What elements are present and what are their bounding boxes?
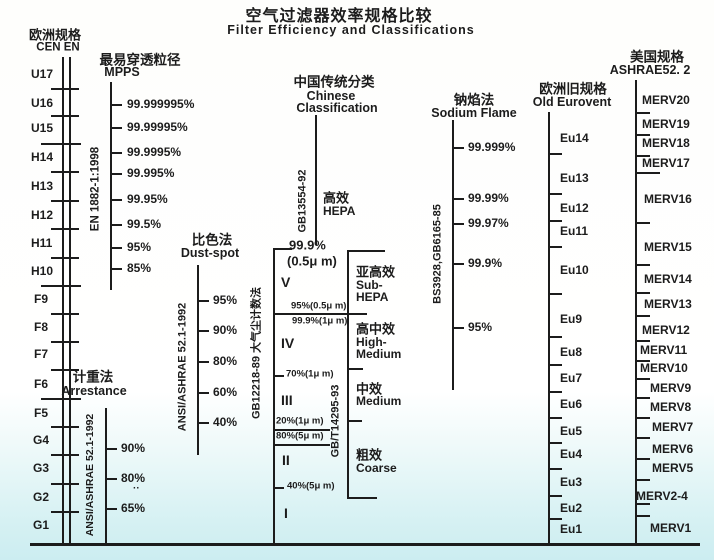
scale-mpps-tick bbox=[110, 224, 122, 226]
scale-dust-spot-label: 40% bbox=[213, 416, 237, 428]
scale-dust-spot-header: Dust-spot bbox=[181, 247, 239, 260]
scale-old-eurovent-label: Eu5 bbox=[560, 425, 582, 437]
scale-chinese-axis-line bbox=[347, 250, 349, 497]
scale-ashrae-merv-label: MERV12 bbox=[642, 324, 690, 336]
scale-chinese-label: 95%(0.5μ m) bbox=[291, 301, 346, 311]
diagram: 空气过滤器效率规格比较 Filter Efficiency and Classi… bbox=[0, 0, 714, 560]
scale-chinese-vertical-label: GB12218-89 大气尘计数法 bbox=[252, 287, 263, 419]
scale-cen-en-label: F5 bbox=[34, 407, 48, 419]
scale-chinese-axis-line bbox=[273, 248, 275, 543]
scale-chinese-label: 高中效 bbox=[356, 323, 395, 336]
scale-ashrae-merv-tick bbox=[635, 458, 650, 460]
scale-ashrae-merv-label: MERV10 bbox=[640, 362, 688, 374]
scale-chinese-label: 高效 bbox=[323, 192, 349, 205]
scale-old-eurovent-label: Eu3 bbox=[560, 476, 582, 488]
page: { "title": { "zh": "空气过滤器效率规格比较", "en": … bbox=[0, 0, 714, 560]
scale-mpps-header: 最易穿透粒径 bbox=[100, 53, 181, 67]
scale-chinese-label: 粗效 bbox=[356, 449, 382, 462]
scale-cen-en-label: U16 bbox=[31, 97, 53, 109]
scale-arrestance-tick bbox=[105, 448, 117, 450]
scale-arrestance-header: 计重法 bbox=[73, 370, 114, 384]
scale-ashrae-merv-label: MERV18 bbox=[642, 137, 690, 149]
scale-ashrae-merv-tick bbox=[635, 155, 650, 157]
scale-cen-en-axis-line bbox=[69, 57, 71, 543]
scale-mpps-tick bbox=[110, 152, 122, 154]
scale-chinese-header: Chinese bbox=[307, 90, 356, 103]
scale-cen-en-tick bbox=[51, 88, 79, 90]
scale-cen-en-label: F8 bbox=[34, 321, 48, 333]
scale-ashrae-merv-tick bbox=[635, 315, 650, 317]
scale-old-eurovent-label: Eu13 bbox=[560, 172, 589, 184]
scale-mpps-tick bbox=[110, 247, 122, 249]
scale-mpps: 最易穿透粒径MPPS99.999995%99.99995%99.9995%99.… bbox=[0, 0, 714, 560]
scale-mpps-label: 99.5% bbox=[127, 218, 161, 230]
scale-old-eurovent-label: Eu10 bbox=[560, 264, 589, 276]
scale-chinese-label: V bbox=[281, 275, 290, 289]
scale-old-eurovent-tick bbox=[548, 364, 562, 366]
scale-old-eurovent-label: Eu4 bbox=[560, 448, 582, 460]
scale-old-eurovent-tick bbox=[548, 518, 562, 520]
scale-cen-en-tick bbox=[51, 313, 79, 315]
scale-ashrae-merv-tick bbox=[635, 222, 650, 224]
scale-ashrae-merv-header: 美国规格 bbox=[630, 50, 684, 64]
scale-chinese-tick bbox=[273, 487, 284, 489]
scale-old-eurovent-tick bbox=[548, 153, 562, 155]
scale-cen-en-tick bbox=[51, 483, 79, 485]
scale-sodium-flame: 钠焰法Sodium Flame99.999%99.99%99.97%99.9%9… bbox=[0, 0, 714, 560]
scale-cen-en-tick bbox=[51, 115, 79, 117]
scale-chinese-label: Medium bbox=[356, 395, 401, 407]
scale-cen-en-tick bbox=[51, 511, 79, 513]
scale-ashrae-merv-label: MERV9 bbox=[650, 382, 691, 394]
scale-cen-en-header: CEN EN bbox=[36, 42, 79, 54]
scale-sodium-flame-tick bbox=[452, 147, 464, 149]
scale-cen-en-label: F7 bbox=[34, 348, 48, 360]
scale-mpps-tick bbox=[110, 173, 122, 175]
scale-chinese-tick bbox=[347, 368, 363, 370]
scale-mpps-label: 99.95% bbox=[127, 193, 168, 205]
scale-arrestance-label: 80% bbox=[121, 472, 145, 484]
scale-cen-en-tick bbox=[51, 200, 79, 202]
scale-arrestance-label: 65% bbox=[121, 502, 145, 514]
scale-chinese-label: 99.9%(1μ m) bbox=[292, 316, 347, 326]
scale-ashrae-merv-tick bbox=[635, 360, 650, 362]
scale-chinese-label: 40%(5μ m) bbox=[287, 481, 335, 491]
scale-dust-spot-label: 90% bbox=[213, 324, 237, 336]
scale-cen-en-label: G2 bbox=[33, 491, 49, 503]
scale-cen-en-label: H10 bbox=[31, 265, 53, 277]
scale-chinese-axis-line bbox=[315, 115, 317, 245]
scale-sodium-flame-label: 99.999% bbox=[468, 141, 515, 153]
scale-arrestance: 计重法Arrestance90%80%··65%ANSI/ASHRAE 52.1… bbox=[0, 0, 714, 560]
scale-sodium-flame-vertical-label: BS3928,GB6165-85 bbox=[433, 204, 444, 304]
scale-arrestance-tick bbox=[105, 508, 117, 510]
scale-ashrae-merv-tick bbox=[635, 479, 650, 481]
scale-chinese-label: Medium bbox=[356, 348, 401, 360]
scale-chinese-label: III bbox=[281, 393, 293, 407]
scale-ashrae-merv-label: MERV15 bbox=[644, 241, 692, 253]
scale-ashrae-merv-tick bbox=[635, 264, 650, 266]
scale-sodium-flame-label: 99.97% bbox=[468, 217, 509, 229]
scale-old-eurovent-label: Eu7 bbox=[560, 372, 582, 384]
scale-ashrae-merv-label: MERV8 bbox=[650, 401, 691, 413]
scale-mpps-header: MPPS bbox=[104, 66, 139, 79]
scale-dust-spot-label: 95% bbox=[213, 294, 237, 306]
scale-arrestance-label: ·· bbox=[133, 484, 140, 494]
scale-old-eurovent-tick bbox=[548, 246, 562, 248]
scale-sodium-flame-header: Sodium Flame bbox=[431, 107, 516, 120]
scale-cen-en-tick bbox=[51, 341, 79, 343]
scale-old-eurovent-tick bbox=[548, 468, 562, 470]
scale-arrestance-vertical-label: ANSI/ASHRAE 52.1-1992 bbox=[85, 414, 96, 537]
scale-ashrae-merv-tick bbox=[635, 397, 650, 399]
scale-old-eurovent-tick bbox=[548, 336, 562, 338]
scale-dust-spot-vertical-label: ANSI/ASHRAE 52.1-1992 bbox=[178, 303, 189, 431]
scale-cen-en-tick bbox=[41, 143, 81, 145]
scale-cen-en-tick bbox=[41, 398, 81, 400]
scale-mpps-label: 99.99995% bbox=[127, 121, 188, 133]
baseline bbox=[30, 543, 700, 546]
scale-old-eurovent-tick bbox=[548, 391, 562, 393]
scale-cen-en-tick bbox=[51, 369, 79, 371]
scale-chinese-label: Sub- bbox=[356, 279, 383, 291]
scale-ashrae-merv-tick bbox=[635, 378, 650, 380]
scale-sodium-flame-tick bbox=[452, 263, 464, 265]
scale-dust-spot-header: 比色法 bbox=[192, 233, 233, 247]
scale-chinese-header: Classification bbox=[296, 102, 377, 115]
scale-ashrae-merv-tick bbox=[635, 417, 650, 419]
scale-ashrae-merv-header: ASHRAE52. 2 bbox=[610, 64, 691, 77]
scale-cen-en-tick bbox=[51, 228, 79, 230]
scale-sodium-flame-axis-line bbox=[452, 120, 454, 390]
scale-cen-en: 欧洲规格CEN ENU17U16U15H14H13H12H11H10F9F8F7… bbox=[0, 0, 714, 560]
scale-chinese-label: 99.9% bbox=[289, 239, 326, 252]
scale-chinese-label: 20%(1μ m) bbox=[276, 416, 324, 426]
scale-cen-en-label: F6 bbox=[34, 378, 48, 390]
scale-old-eurovent-axis-line bbox=[548, 112, 550, 543]
scale-ashrae-merv-tick bbox=[635, 292, 650, 294]
scale-ashrae-merv-tick bbox=[635, 172, 660, 174]
scale-mpps-label: 95% bbox=[127, 241, 151, 253]
scale-chinese-label: II bbox=[282, 453, 290, 467]
scale-mpps-vertical-label: EN 1882-1:1998 bbox=[90, 147, 102, 231]
scale-ashrae-merv-label: MERV2-4 bbox=[636, 490, 688, 502]
scale-cen-en-tick bbox=[41, 285, 81, 287]
scale-old-eurovent-tick bbox=[548, 417, 562, 419]
scale-old-eurovent: 欧洲旧规格Old EuroventEu14Eu13Eu12Eu11Eu10Eu9… bbox=[0, 0, 714, 560]
scale-ashrae-merv-tick bbox=[635, 112, 650, 114]
scale-dust-spot-tick bbox=[197, 300, 209, 302]
scale-mpps-label: 99.995% bbox=[127, 167, 174, 179]
scale-ashrae-merv-label: MERV13 bbox=[644, 298, 692, 310]
scale-dust-spot-axis-line bbox=[197, 265, 199, 455]
scale-ashrae-merv-label: MERV5 bbox=[652, 462, 693, 474]
scale-old-eurovent-tick bbox=[548, 220, 562, 222]
scale-chinese-label: HEPA bbox=[323, 205, 355, 217]
scale-chinese-label: HEPA bbox=[356, 291, 388, 303]
scale-ashrae-merv-tick bbox=[635, 134, 650, 136]
scale-ashrae-merv-tick bbox=[635, 515, 650, 517]
scale-chinese-label: I bbox=[284, 506, 288, 520]
scale-chinese-header: 中国传统分类 bbox=[294, 75, 375, 89]
scale-dust-spot-label: 60% bbox=[213, 386, 237, 398]
scale-ashrae-merv-label: MERV14 bbox=[644, 273, 692, 285]
scale-cen-en-label: G1 bbox=[33, 519, 49, 531]
scale-mpps-tick bbox=[110, 104, 122, 106]
scale-arrestance-header: Arrestance bbox=[61, 385, 126, 398]
scale-chinese-label: 中效 bbox=[356, 383, 382, 396]
scale-cen-en-label: G4 bbox=[33, 434, 49, 446]
scale-old-eurovent-label: Eu9 bbox=[560, 313, 582, 325]
scale-dust-spot-label: 80% bbox=[213, 355, 237, 367]
scale-sodium-flame-label: 99.99% bbox=[468, 192, 509, 204]
scale-chinese-tick bbox=[273, 375, 284, 377]
scale-chinese-vertical-label: GB13554-92 bbox=[298, 170, 309, 233]
scale-mpps-label: 99.999995% bbox=[127, 98, 194, 110]
scale-cen-en-label: H13 bbox=[31, 180, 53, 192]
scale-chinese-tick bbox=[347, 250, 385, 252]
scale-chinese-label: (0.5μ m) bbox=[287, 255, 337, 268]
scale-old-eurovent-label: Eu12 bbox=[560, 202, 589, 214]
scale-cen-en-tick bbox=[51, 257, 79, 259]
scale-cen-en-tick bbox=[51, 171, 79, 173]
scale-mpps-tick bbox=[110, 127, 122, 129]
scale-old-eurovent-label: Eu1 bbox=[560, 523, 582, 535]
scale-cen-en-label: G3 bbox=[33, 462, 49, 474]
scale-old-eurovent-label: Eu6 bbox=[560, 398, 582, 410]
scale-chinese-tick bbox=[273, 444, 330, 446]
scale-chinese-vertical-label: GB/T14295-93 bbox=[331, 385, 342, 458]
scale-mpps-label: 99.9995% bbox=[127, 146, 181, 158]
scale-sodium-flame-tick bbox=[452, 198, 464, 200]
scale-dust-spot-tick bbox=[197, 422, 209, 424]
scale-old-eurovent-label: Eu2 bbox=[560, 502, 582, 514]
scale-ashrae-merv-label: MERV16 bbox=[644, 193, 692, 205]
scale-cen-en-label: U15 bbox=[31, 122, 53, 134]
scale-arrestance-tick bbox=[105, 478, 117, 480]
scale-ashrae-merv-label: MERV6 bbox=[652, 443, 693, 455]
scale-old-eurovent-tick bbox=[548, 293, 562, 295]
scale-sodium-flame-tick bbox=[452, 223, 464, 225]
scale-sodium-flame-label: 95% bbox=[468, 321, 492, 333]
scale-chinese-tick bbox=[347, 497, 377, 499]
scale-ashrae-merv-label: MERV20 bbox=[642, 94, 690, 106]
scale-chinese-label: High- bbox=[356, 336, 387, 348]
scale-mpps-label: 85% bbox=[127, 262, 151, 274]
scale-sodium-flame-tick bbox=[452, 327, 464, 329]
scale-cen-en-header: 欧洲规格 bbox=[29, 29, 81, 42]
scale-sodium-flame-header: 钠焰法 bbox=[454, 93, 495, 107]
scale-old-eurovent-label: Eu8 bbox=[560, 346, 582, 358]
scale-old-eurovent-tick bbox=[548, 495, 562, 497]
scale-chinese-tick bbox=[273, 313, 367, 315]
scale-cen-en-axis-line bbox=[62, 57, 64, 543]
scale-mpps-tick bbox=[110, 199, 122, 201]
scale-arrestance-axis-line bbox=[105, 408, 107, 543]
scale-chinese: 中国传统分类ChineseClassification高效HEPA99.9%(0… bbox=[0, 0, 714, 560]
scale-cen-en-label: F9 bbox=[34, 293, 48, 305]
scale-arrestance-label: 90% bbox=[121, 442, 145, 454]
scale-old-eurovent-tick bbox=[548, 442, 562, 444]
scale-ashrae-merv: 美国规格ASHRAE52. 2MERV20MERV19MERV18MERV17M… bbox=[0, 0, 714, 560]
scale-old-eurovent-header: Old Eurovent bbox=[533, 96, 611, 109]
scale-chinese-label: Coarse bbox=[356, 462, 397, 474]
scale-cen-en-tick bbox=[51, 454, 79, 456]
scale-old-eurovent-tick bbox=[548, 193, 562, 195]
scale-sodium-flame-label: 99.9% bbox=[468, 257, 502, 269]
scale-dust-spot-tick bbox=[197, 330, 209, 332]
scale-cen-en-label: H12 bbox=[31, 209, 53, 221]
scale-old-eurovent-label: Eu11 bbox=[560, 225, 588, 237]
scale-ashrae-merv-tick bbox=[635, 437, 650, 439]
scale-ashrae-merv-label: MERV1 bbox=[650, 522, 691, 534]
scale-chinese-label: 70%(1μ m) bbox=[286, 369, 334, 379]
scale-chinese-tick bbox=[273, 429, 330, 431]
scale-ashrae-merv-label: MERV19 bbox=[642, 118, 690, 130]
scale-ashrae-merv-tick bbox=[635, 340, 650, 342]
scale-ashrae-merv-label: MERV7 bbox=[652, 421, 693, 433]
scale-mpps-axis-line bbox=[110, 82, 112, 290]
scale-ashrae-merv-tick bbox=[635, 503, 650, 505]
scale-chinese-tick bbox=[347, 420, 362, 422]
scale-cen-en-label: U17 bbox=[31, 68, 53, 80]
scale-ashrae-merv-label: MERV11 bbox=[640, 344, 687, 356]
page-title-en: Filter Efficiency and Classifications bbox=[227, 23, 474, 37]
scale-ashrae-merv-label: MERV17 bbox=[642, 157, 690, 169]
scale-chinese-label: 80%(5μ m) bbox=[276, 431, 324, 441]
scale-old-eurovent-header: 欧洲旧规格 bbox=[539, 82, 607, 96]
scale-old-eurovent-label: Eu14 bbox=[560, 132, 589, 144]
scale-dust-spot-tick bbox=[197, 361, 209, 363]
scale-cen-en-label: H14 bbox=[31, 151, 53, 163]
scale-dust-spot-tick bbox=[197, 392, 209, 394]
scale-cen-en-tick bbox=[51, 426, 79, 428]
scale-ashrae-merv-axis-line bbox=[635, 80, 637, 543]
scale-mpps-tick bbox=[110, 268, 122, 270]
scale-chinese-tick bbox=[273, 248, 292, 250]
scale-chinese-label: IV bbox=[281, 336, 294, 350]
scale-cen-en-label: H11 bbox=[31, 237, 52, 249]
scale-chinese-label: 亚高效 bbox=[356, 266, 395, 279]
scale-dust-spot: 比色法Dust-spot95%90%80%60%40%ANSI/ASHRAE 5… bbox=[0, 0, 714, 560]
